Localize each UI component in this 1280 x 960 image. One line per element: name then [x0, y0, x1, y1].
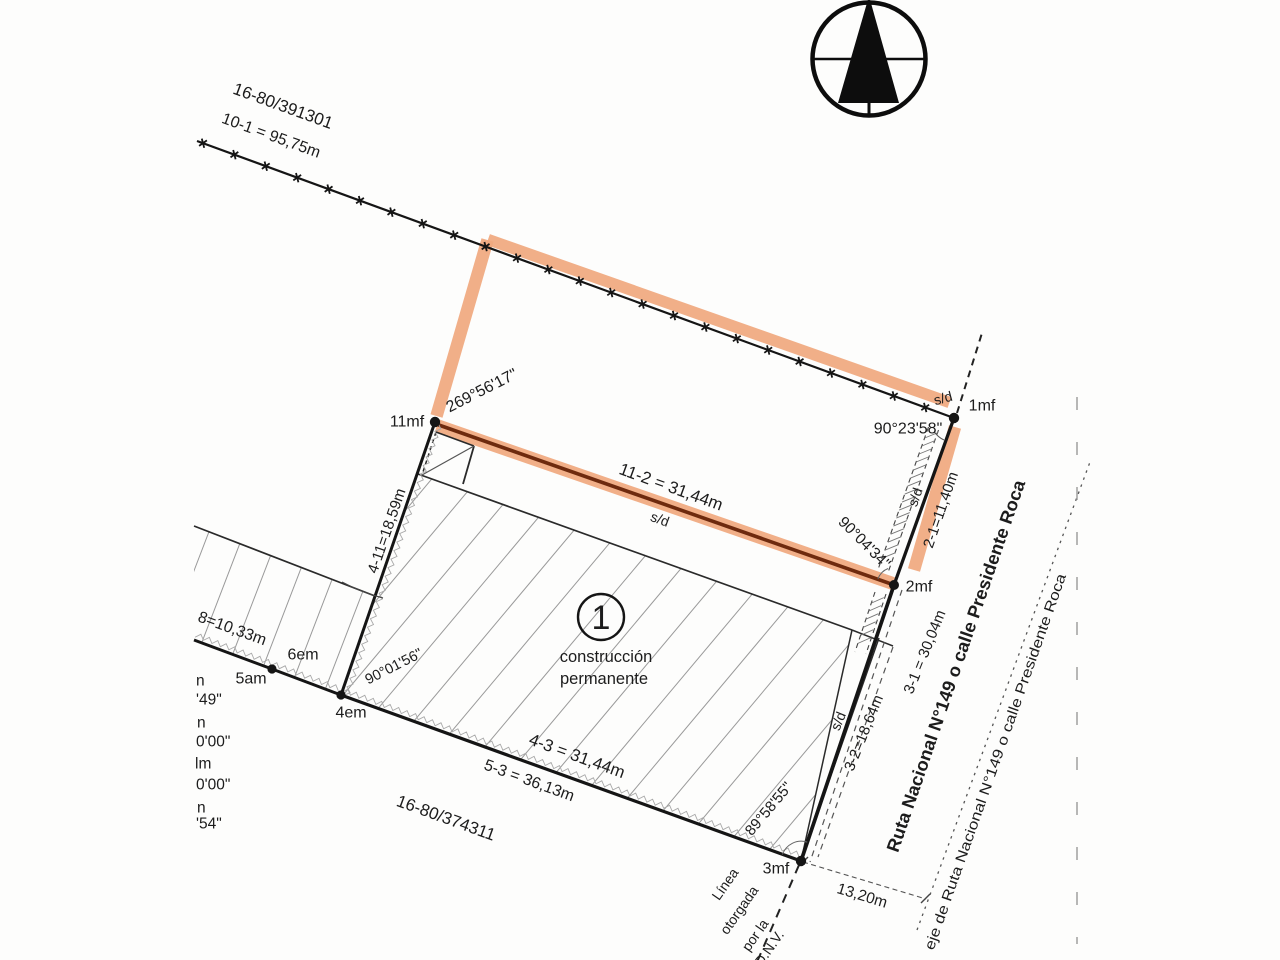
- svg-text:6em: 6em: [287, 647, 318, 664]
- svg-text:n: n: [197, 800, 206, 817]
- svg-text:3mf: 3mf: [763, 861, 790, 878]
- svg-text:lm: lm: [195, 756, 211, 773]
- svg-text:1: 1: [592, 599, 611, 637]
- svg-text:0'00": 0'00": [196, 777, 230, 794]
- svg-text:'54": '54": [196, 816, 222, 833]
- svg-text:n: n: [196, 673, 205, 690]
- svg-text:5am: 5am: [235, 671, 266, 688]
- svg-text:90°23'58": 90°23'58": [874, 421, 943, 438]
- svg-text:11mf: 11mf: [390, 414, 425, 431]
- svg-text:0'00": 0'00": [196, 734, 230, 751]
- svg-text:4em: 4em: [335, 705, 366, 722]
- svg-text:n: n: [197, 715, 206, 732]
- svg-text:'49": '49": [196, 692, 222, 709]
- svg-text:permanente: permanente: [560, 670, 648, 688]
- svg-text:construcción: construcción: [560, 648, 653, 666]
- svg-text:2mf: 2mf: [906, 579, 933, 596]
- svg-text:1mf: 1mf: [969, 398, 996, 415]
